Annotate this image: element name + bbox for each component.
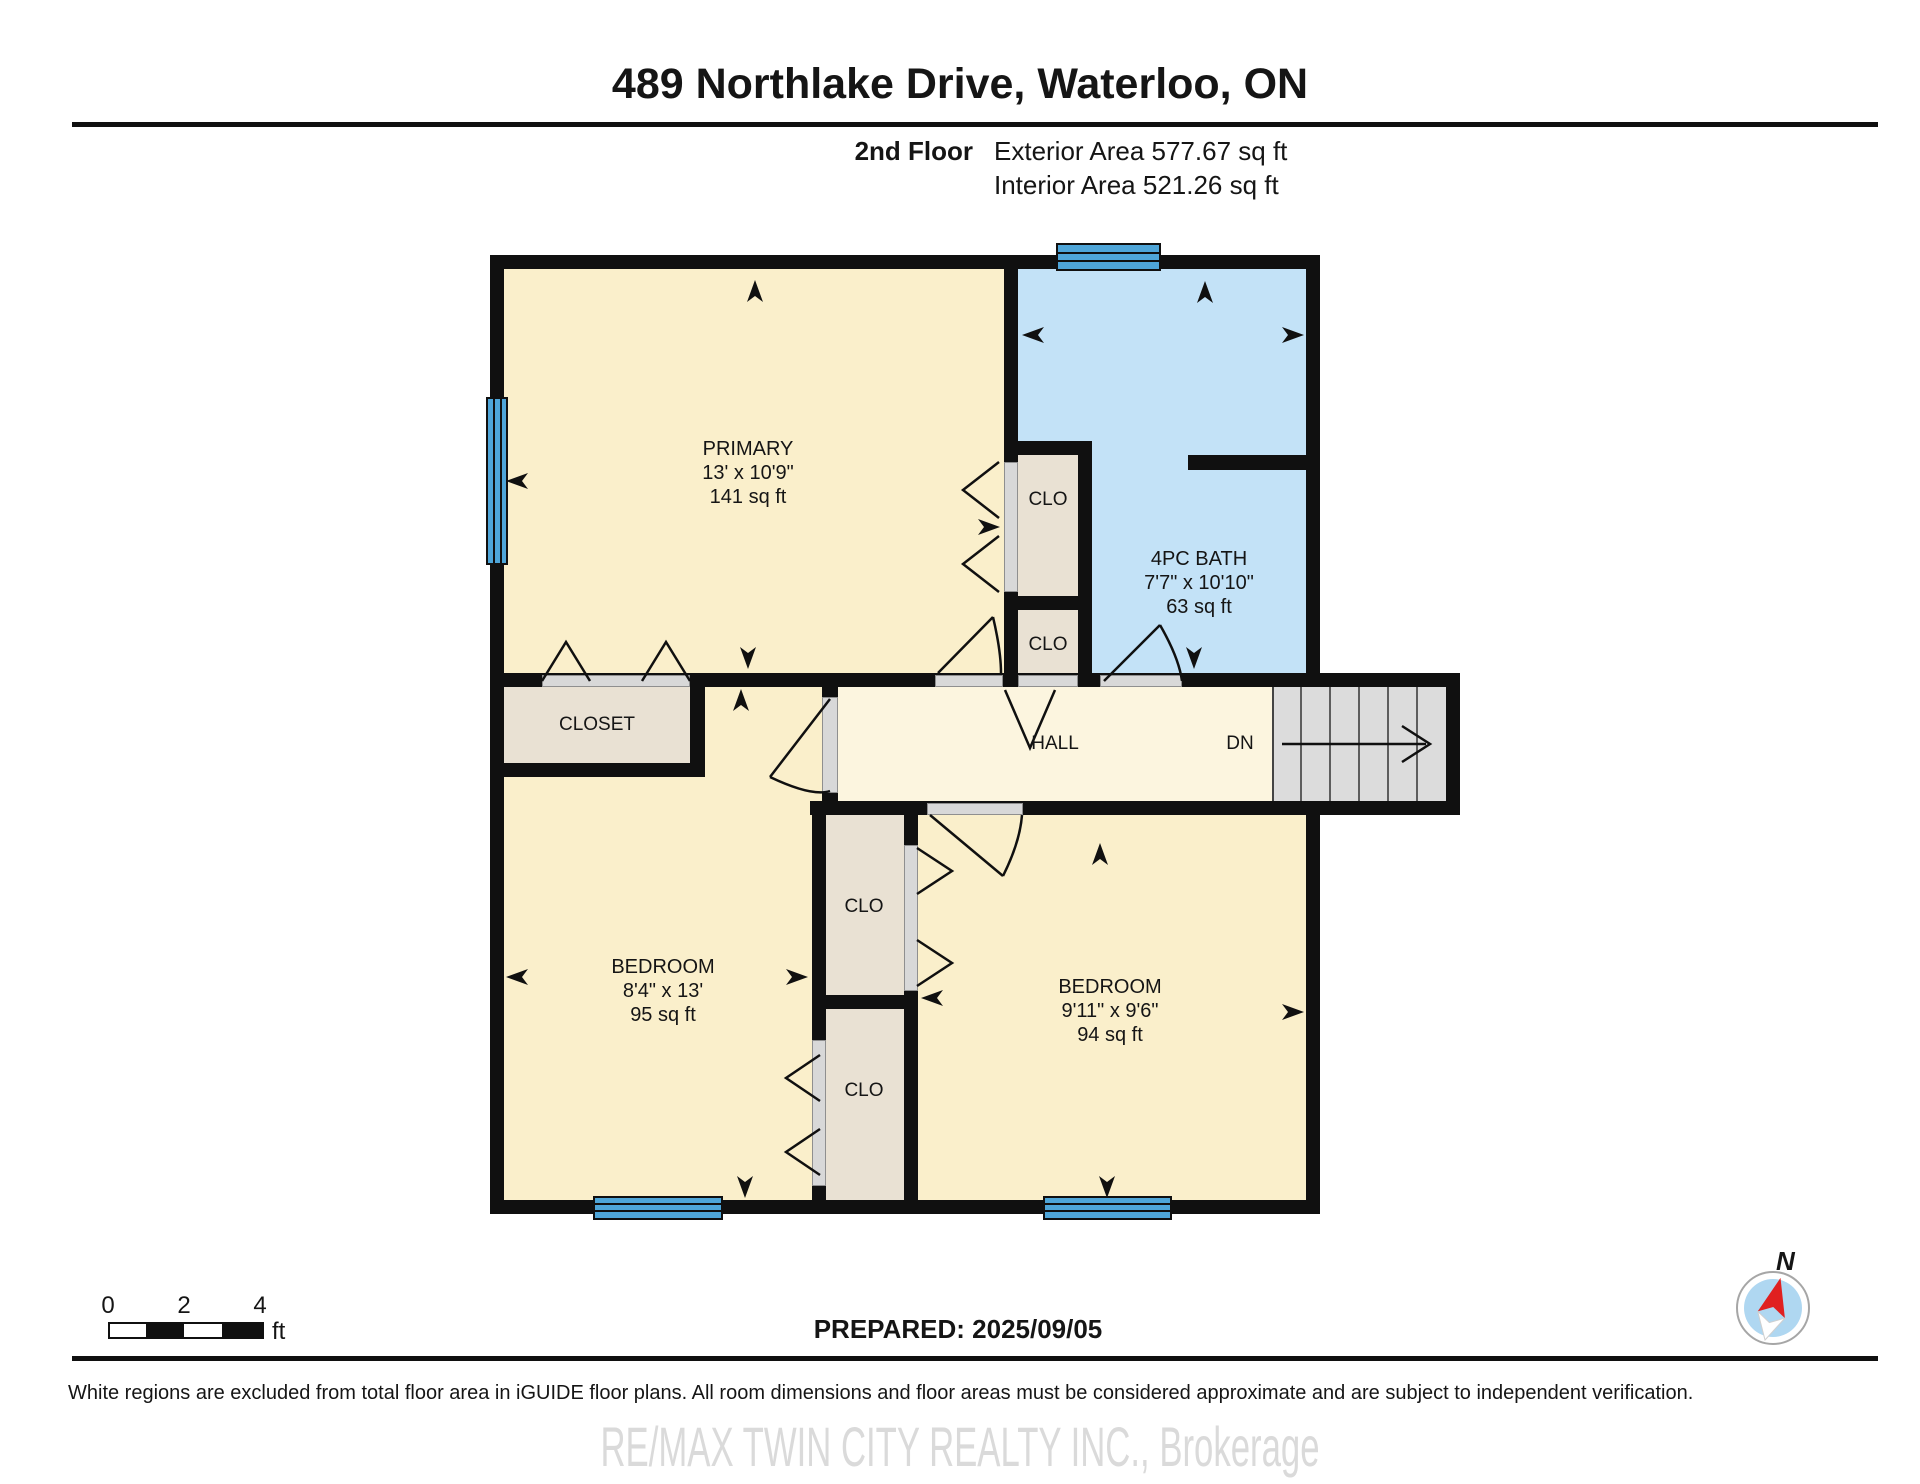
label-primary: PRIMARY 13' x 10'9" 141 sq ft [702, 437, 793, 509]
stairs-direction-arrow [1282, 726, 1430, 762]
plan-symbols-overlay [0, 0, 1920, 1484]
door-swing-symbols [770, 617, 1182, 876]
label-clo-mid-upper: CLO [1028, 489, 1067, 511]
label-clo-mid-lower: CLO [1028, 634, 1067, 656]
label-bedroom-left: BEDROOM 8'4" x 13' 95 sq ft [611, 955, 714, 1027]
label-clo-bottom-upper: CLO [844, 896, 883, 918]
label-bedroom-right: BEDROOM 9'11" x 9'6" 94 sq ft [1058, 975, 1161, 1047]
label-bath: 4PC BATH 7'7" x 10'10" 63 sq ft [1144, 547, 1254, 619]
label-stairs-down: DN [1226, 733, 1253, 755]
floor-plan-page: 489 Northlake Drive, Waterloo, ON 2nd Fl… [0, 0, 1920, 1484]
closet-chevron-doors [542, 462, 999, 1175]
wall-arrow-markers [506, 280, 1304, 1198]
label-closet: CLOSET [559, 714, 635, 736]
label-clo-bottom-lower: CLO [844, 1080, 883, 1102]
label-hall: HALL [1031, 733, 1079, 755]
